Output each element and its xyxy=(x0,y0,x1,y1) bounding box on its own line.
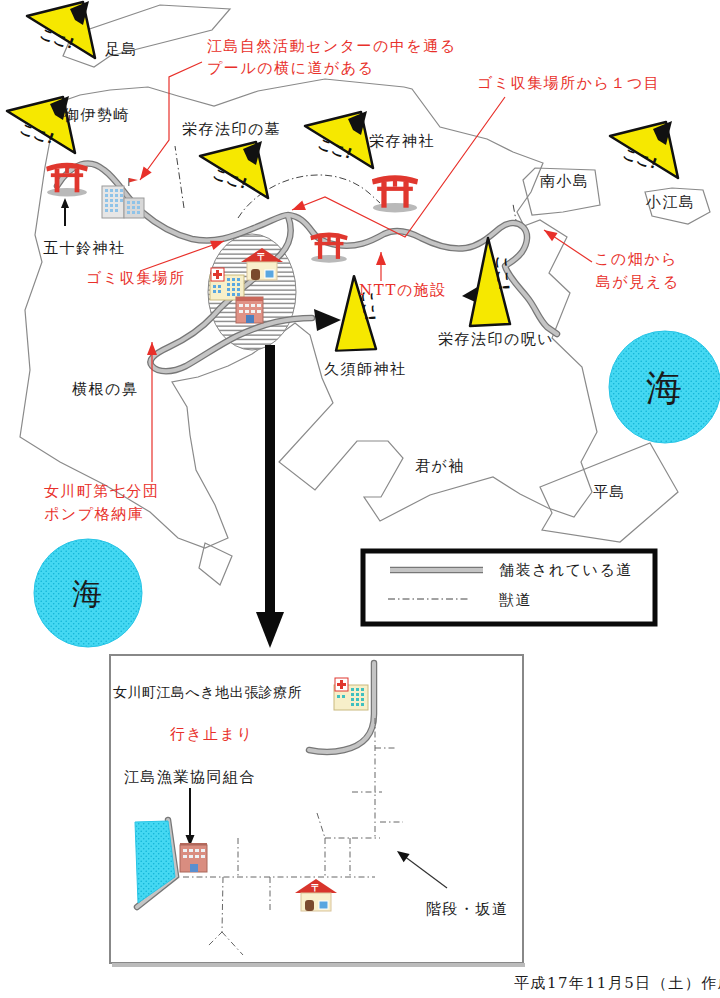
pink-building-icon xyxy=(236,297,263,323)
note-pump-line2: ポンプ格納庫 xyxy=(44,505,144,523)
note-field-view-line2: 島が見える xyxy=(596,273,680,291)
label-oisezaki: 御伊勢崎 xyxy=(64,106,130,124)
svg-text:〒: 〒 xyxy=(311,882,321,893)
map-canvas: 〒 xyxy=(0,0,720,998)
label-heijima: 平島 xyxy=(593,483,626,501)
here-flag-grave: ここ! xyxy=(200,141,268,198)
torii-icon-eizon xyxy=(372,175,418,212)
label-ashijima: 足島 xyxy=(105,40,138,58)
note-field-view-line1: この畑から xyxy=(594,250,678,268)
here-flag-eizon-shrine: ここ! xyxy=(305,111,373,168)
label-sea-right: 海 xyxy=(646,366,682,409)
legend-trail-label: 獣道 xyxy=(499,591,532,609)
svg-text:〒: 〒 xyxy=(257,251,267,262)
inset-map: 〒 xyxy=(110,655,525,965)
inset-stairs-label: 階段・坂道 xyxy=(426,900,509,918)
here-flag-ashijima: ここ! xyxy=(27,1,95,58)
label-eizon-shrine: 栄存神社 xyxy=(369,132,435,150)
svg-text:ここ!: ここ! xyxy=(494,255,512,291)
inset-fishery-label: 江島漁業協同組合 xyxy=(124,768,256,786)
note-ntt: NTTの施設 xyxy=(359,281,447,299)
note-activity-center-line1: 江島自然活動センターの中を通る xyxy=(207,37,457,55)
activity-center-icon xyxy=(102,178,144,218)
here-flag-oisezaki: ここ! xyxy=(7,96,75,153)
label-minami-kojima: 南小島 xyxy=(540,172,590,190)
fishery-coop-icon xyxy=(180,843,207,872)
trail-to-grave xyxy=(175,146,184,208)
label-eizon-curse: 栄存法印の呪い xyxy=(438,330,554,348)
note-garbage-first: ゴミ収集場所から１つ目 xyxy=(477,74,660,92)
label-isuzu-shrine: 五十鈴神社 xyxy=(43,239,126,257)
label-koejima: 小江島 xyxy=(646,193,696,211)
label-kusushi-shrine: 久須師神社 xyxy=(324,360,407,378)
here-flag-curse: ここ! xyxy=(470,238,512,326)
label-sea-left: 海 xyxy=(72,576,102,612)
coastline-islet xyxy=(199,543,232,585)
legend-paved-label: 舗装されている道 xyxy=(499,561,633,579)
note-pump-line1: 女川町第七分団 xyxy=(44,482,160,500)
note-activity-center-line2: プールの横に道がある xyxy=(207,59,374,77)
label-eizon-grave: 栄存法印の墓 xyxy=(182,120,281,138)
note-garbage-site: ゴミ収集場所 xyxy=(86,269,186,287)
label-yokone-no-hana: 横根の鼻 xyxy=(72,380,138,398)
coastline-main-island xyxy=(20,79,597,548)
torii-icon-isuzu xyxy=(46,163,88,197)
created-date: 平成17年11月5日（土）作成 xyxy=(514,974,720,992)
road-end-arrow xyxy=(314,309,341,331)
inset-clinic-label: 女川町江島へき地出張診療所 xyxy=(113,684,302,701)
label-kimigasode: 君が袖 xyxy=(415,457,465,475)
here-flag-koejima: ここ! xyxy=(610,121,678,178)
inset-dead-end-label: 行き止まり xyxy=(170,725,254,743)
